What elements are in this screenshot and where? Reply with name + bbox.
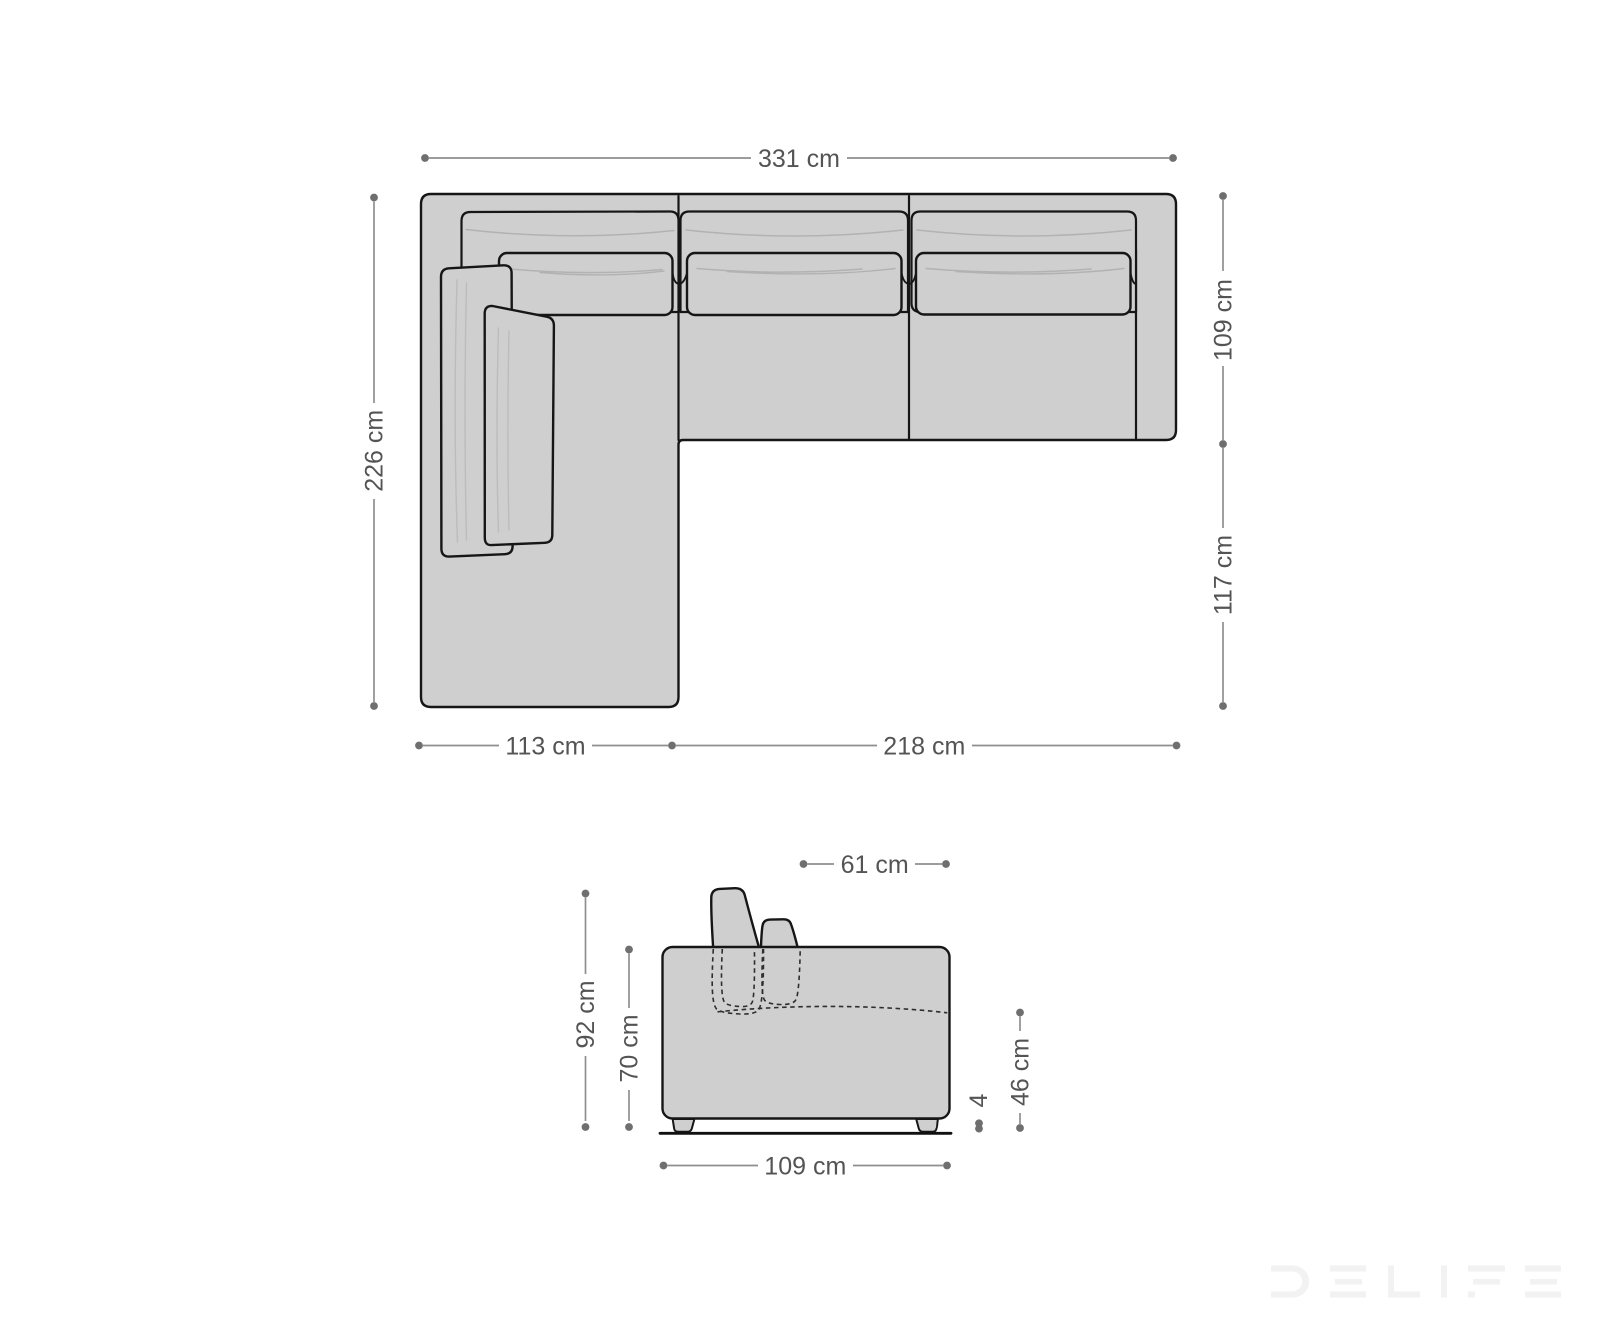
svg-text:4: 4 bbox=[965, 1093, 993, 1107]
svg-text:70 cm: 70 cm bbox=[616, 1014, 644, 1082]
svg-text:218 cm: 218 cm bbox=[883, 733, 965, 761]
svg-text:117 cm: 117 cm bbox=[1210, 535, 1238, 615]
svg-text:113 cm: 113 cm bbox=[505, 733, 585, 761]
svg-text:92 cm: 92 cm bbox=[572, 980, 600, 1048]
svg-text:109 cm: 109 cm bbox=[764, 1153, 846, 1181]
svg-text:109 cm: 109 cm bbox=[1210, 279, 1238, 361]
svg-text:61 cm: 61 cm bbox=[841, 851, 909, 879]
svg-text:331 cm: 331 cm bbox=[758, 145, 840, 173]
svg-text:46 cm: 46 cm bbox=[1007, 1038, 1035, 1106]
svg-text:226 cm: 226 cm bbox=[361, 410, 389, 492]
